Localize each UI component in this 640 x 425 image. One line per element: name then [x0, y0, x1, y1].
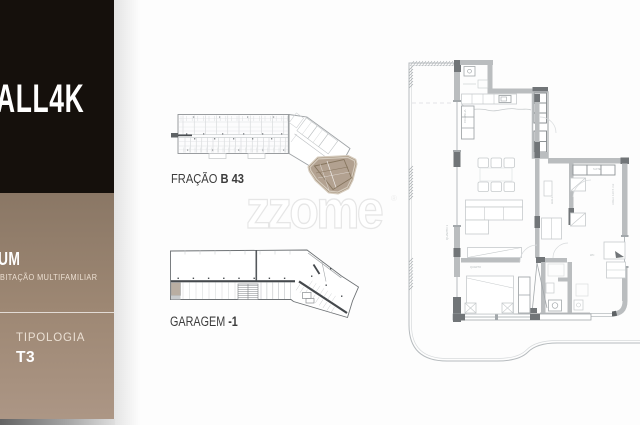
svg-text:QUARTO 1: QUARTO 1 — [445, 224, 449, 240]
svg-text:HALL: HALL — [550, 196, 554, 204]
svg-text:WC: WC — [590, 253, 594, 257]
svg-text:COZINHA: COZINHA — [463, 110, 467, 124]
svg-text:zzome: zzome — [246, 181, 382, 240]
svg-text:SUITE: SUITE — [593, 167, 601, 171]
svg-text:AREA 120.5 m2: AREA 120.5 m2 — [611, 183, 615, 205]
svg-text:QUARTO: QUARTO — [470, 265, 481, 269]
